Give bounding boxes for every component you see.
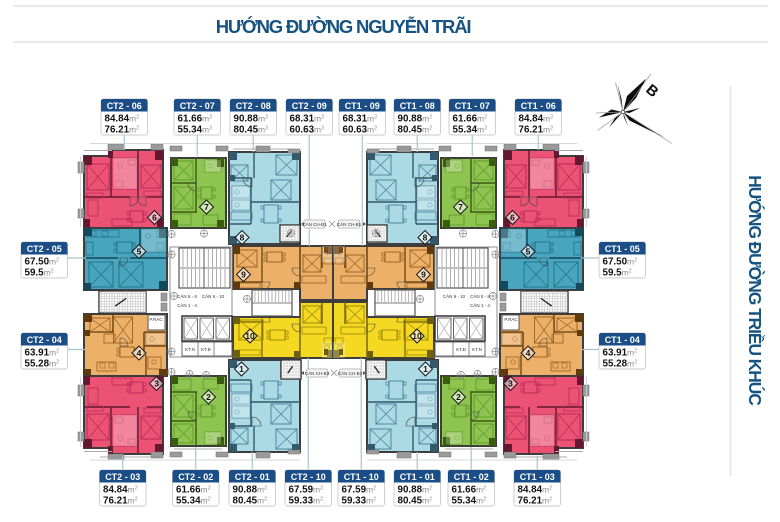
svg-text:CT1 - 01: CT1 - 01 <box>400 472 435 482</box>
svg-text:6: 6 <box>152 213 157 223</box>
svg-text:CT1 - 09: CT1 - 09 <box>345 101 380 111</box>
svg-text:67.59m2: 67.59m2 <box>289 485 324 496</box>
svg-text:84.84m2: 84.84m2 <box>518 485 553 496</box>
svg-text:HƯỚNG ĐƯỜNG NGUYỄN TRÃI: HƯỚNG ĐƯỜNG NGUYỄN TRÃI <box>216 16 471 37</box>
svg-text:CT1 - 04: CT1 - 04 <box>605 335 640 345</box>
svg-text:55.28m2: 55.28m2 <box>25 359 60 370</box>
svg-text:63.91m2: 63.91m2 <box>603 348 638 359</box>
svg-text:CT1 - 10: CT1 - 10 <box>344 472 379 482</box>
svg-text:7: 7 <box>204 202 209 212</box>
svg-text:59.5m2: 59.5m2 <box>25 268 54 279</box>
svg-text:80.45m2: 80.45m2 <box>398 496 433 507</box>
svg-text:60.63m2: 60.63m2 <box>290 125 325 136</box>
svg-text:HƯỚNG ĐƯỜNG TRIỀU KHÚC: HƯỚNG ĐƯỜNG TRIỀU KHÚC <box>745 175 765 406</box>
svg-text:2: 2 <box>206 392 211 402</box>
svg-text:CT2 - 04: CT2 - 04 <box>27 335 62 345</box>
svg-text:5: 5 <box>137 247 142 257</box>
svg-text:55.34m2: 55.34m2 <box>453 125 488 136</box>
svg-text:59.5m2: 59.5m2 <box>603 268 632 279</box>
svg-text:67.50m2: 67.50m2 <box>603 257 638 268</box>
svg-text:80.45m2: 80.45m2 <box>234 125 269 136</box>
svg-text:67.50m2: 67.50m2 <box>25 257 60 268</box>
svg-text:5: 5 <box>526 247 531 257</box>
svg-text:3: 3 <box>154 379 159 389</box>
svg-text:76.21m2: 76.21m2 <box>105 125 140 136</box>
svg-text:KT.N: KT.N <box>472 347 482 352</box>
svg-text:55.34m2: 55.34m2 <box>178 125 213 136</box>
svg-text:KT.Đ: KT.Đ <box>456 347 467 352</box>
svg-text:CT1 - 03: CT1 - 03 <box>520 472 555 482</box>
svg-text:CĂN CH-B1: CĂN CH-B1 <box>302 221 327 227</box>
svg-text:CĂN CH-B3: CĂN CH-B3 <box>338 370 363 376</box>
svg-text:CĂN CH-B1: CĂN CH-B1 <box>337 221 362 227</box>
svg-text:61.66m2: 61.66m2 <box>176 485 211 496</box>
svg-text:CĂN 1 - 4: CĂN 1 - 4 <box>470 302 490 308</box>
svg-text:10: 10 <box>412 331 422 341</box>
svg-text:60.63m2: 60.63m2 <box>343 125 378 136</box>
svg-text:P.RÁC: P.RÁC <box>149 316 163 322</box>
svg-text:4: 4 <box>137 348 142 358</box>
svg-text:55.34m2: 55.34m2 <box>452 496 487 507</box>
svg-text:CĂN 5 - 8: CĂN 5 - 8 <box>470 293 490 299</box>
svg-text:61.66m2: 61.66m2 <box>452 485 487 496</box>
svg-text:9: 9 <box>241 270 246 280</box>
svg-text:84.84m2: 84.84m2 <box>103 485 138 496</box>
svg-text:67.59m2: 67.59m2 <box>342 485 377 496</box>
svg-text:CT2 - 03: CT2 - 03 <box>105 472 140 482</box>
svg-text:CĂN 9 - 10: CĂN 9 - 10 <box>443 293 466 299</box>
svg-text:6: 6 <box>510 213 515 223</box>
svg-text:55.34m2: 55.34m2 <box>176 496 211 507</box>
svg-text:CT2 - 09: CT2 - 09 <box>292 101 327 111</box>
svg-text:CT2 - 10: CT2 - 10 <box>291 472 326 482</box>
svg-text:68.31m2: 68.31m2 <box>343 114 378 125</box>
svg-text:84.84m2: 84.84m2 <box>519 114 554 125</box>
svg-text:CĂN 5 - 8: CĂN 5 - 8 <box>177 293 197 299</box>
svg-text:CT2 - 08: CT2 - 08 <box>236 101 271 111</box>
svg-text:CT2 - 07: CT2 - 07 <box>180 101 215 111</box>
svg-text:59.33m2: 59.33m2 <box>342 496 377 507</box>
svg-text:76.21m2: 76.21m2 <box>519 125 554 136</box>
svg-text:63.91m2: 63.91m2 <box>25 348 60 359</box>
svg-text:80.45m2: 80.45m2 <box>398 125 433 136</box>
svg-text:KT.Đ: KT.Đ <box>201 347 212 352</box>
svg-text:CT1 - 06: CT1 - 06 <box>521 101 556 111</box>
svg-text:10: 10 <box>245 331 255 341</box>
svg-text:80.45m2: 80.45m2 <box>233 496 268 507</box>
svg-text:1: 1 <box>423 364 428 374</box>
svg-text:CT1 - 02: CT1 - 02 <box>454 472 489 482</box>
svg-text:CĂN 9 - 10: CĂN 9 - 10 <box>202 293 225 299</box>
svg-text:CT2 - 01: CT2 - 01 <box>235 472 270 482</box>
svg-text:59.33m2: 59.33m2 <box>289 496 324 507</box>
svg-text:CT2 - 06: CT2 - 06 <box>107 101 142 111</box>
svg-text:4: 4 <box>526 348 531 358</box>
svg-text:55.28m2: 55.28m2 <box>603 359 638 370</box>
svg-text:CT1 - 08: CT1 - 08 <box>400 101 435 111</box>
svg-text:61.66m2: 61.66m2 <box>453 114 488 125</box>
svg-text:CT1 - 05: CT1 - 05 <box>605 244 640 254</box>
svg-text:9: 9 <box>421 270 426 280</box>
svg-text:76.21m2: 76.21m2 <box>518 496 553 507</box>
svg-text:90.88m2: 90.88m2 <box>234 114 269 125</box>
svg-text:8: 8 <box>423 233 428 243</box>
svg-text:90.88m2: 90.88m2 <box>233 485 268 496</box>
svg-text:7: 7 <box>458 202 463 212</box>
svg-text:P.RÁC: P.RÁC <box>504 316 518 322</box>
svg-text:90.88m2: 90.88m2 <box>398 114 433 125</box>
svg-text:CT2 - 05: CT2 - 05 <box>27 244 62 254</box>
svg-text:CT1 - 07: CT1 - 07 <box>455 101 490 111</box>
svg-text:2: 2 <box>456 392 461 402</box>
svg-text:CĂN CH-B3: CĂN CH-B3 <box>305 370 330 376</box>
svg-text:1: 1 <box>239 364 244 374</box>
svg-text:8: 8 <box>240 233 245 243</box>
svg-text:CĂN 1 - 4: CĂN 1 - 4 <box>177 302 197 308</box>
svg-text:76.21m2: 76.21m2 <box>103 496 138 507</box>
svg-text:90.88m2: 90.88m2 <box>398 485 433 496</box>
svg-text:KT.N: KT.N <box>185 347 195 352</box>
svg-text:68.31m2: 68.31m2 <box>290 114 325 125</box>
svg-text:84.84m2: 84.84m2 <box>105 114 140 125</box>
svg-text:CT2 - 02: CT2 - 02 <box>178 472 213 482</box>
svg-text:61.66m2: 61.66m2 <box>178 114 213 125</box>
svg-text:3: 3 <box>508 379 513 389</box>
